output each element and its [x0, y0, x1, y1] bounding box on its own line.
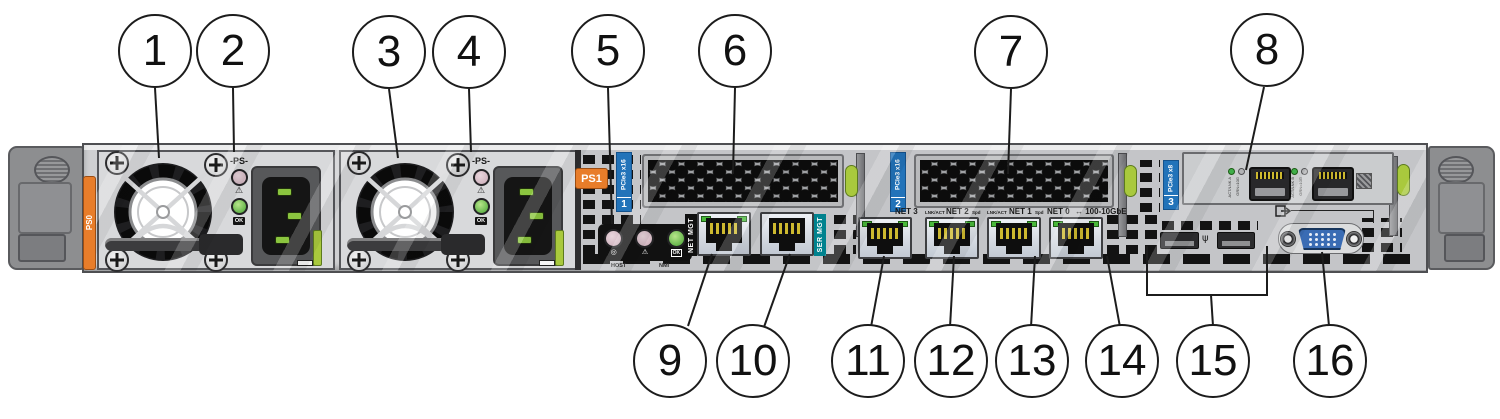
callout-13: 13: [995, 324, 1069, 398]
callout-9: 9: [633, 324, 707, 398]
callout-7: 7: [974, 15, 1048, 89]
callout-10: 10: [716, 324, 790, 398]
callout-4: 4: [432, 15, 506, 89]
callout-5: 5: [571, 14, 645, 88]
rear-panel-diagram: 1 2 3 4 5 6 7 8 9 10 11 12 13 14 15 16 P…: [0, 0, 1500, 419]
callout-16: 16: [1293, 324, 1367, 398]
callout-14: 14: [1085, 324, 1159, 398]
callout-1: 1: [118, 14, 192, 88]
callout-2: 2: [196, 14, 270, 88]
callout-8: 8: [1230, 13, 1304, 87]
callout-3: 3: [352, 15, 426, 89]
callout-15: 15: [1176, 324, 1250, 398]
callout-12: 12: [914, 324, 988, 398]
callout-6: 6: [698, 14, 772, 88]
callout-11: 11: [831, 324, 905, 398]
